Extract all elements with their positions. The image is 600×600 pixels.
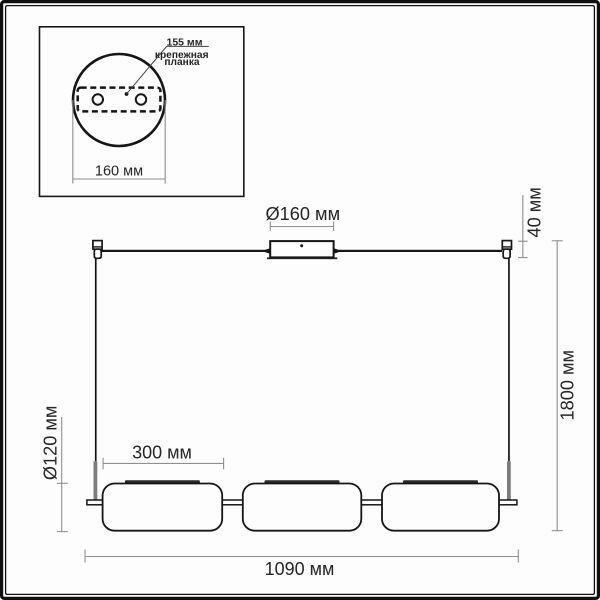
svg-text:1090 мм: 1090 мм (265, 559, 335, 579)
svg-text:40 мм: 40 мм (524, 187, 544, 237)
svg-text:Ø120 мм: Ø120 мм (41, 406, 61, 481)
svg-text:155 мм: 155 мм (167, 36, 203, 48)
svg-text:Ø160 мм: Ø160 мм (266, 204, 341, 224)
svg-text:планка: планка (164, 57, 200, 68)
svg-text:160 мм: 160 мм (95, 164, 143, 180)
svg-text:1800 мм: 1800 мм (557, 350, 577, 421)
svg-text:300 мм: 300 мм (132, 443, 192, 463)
